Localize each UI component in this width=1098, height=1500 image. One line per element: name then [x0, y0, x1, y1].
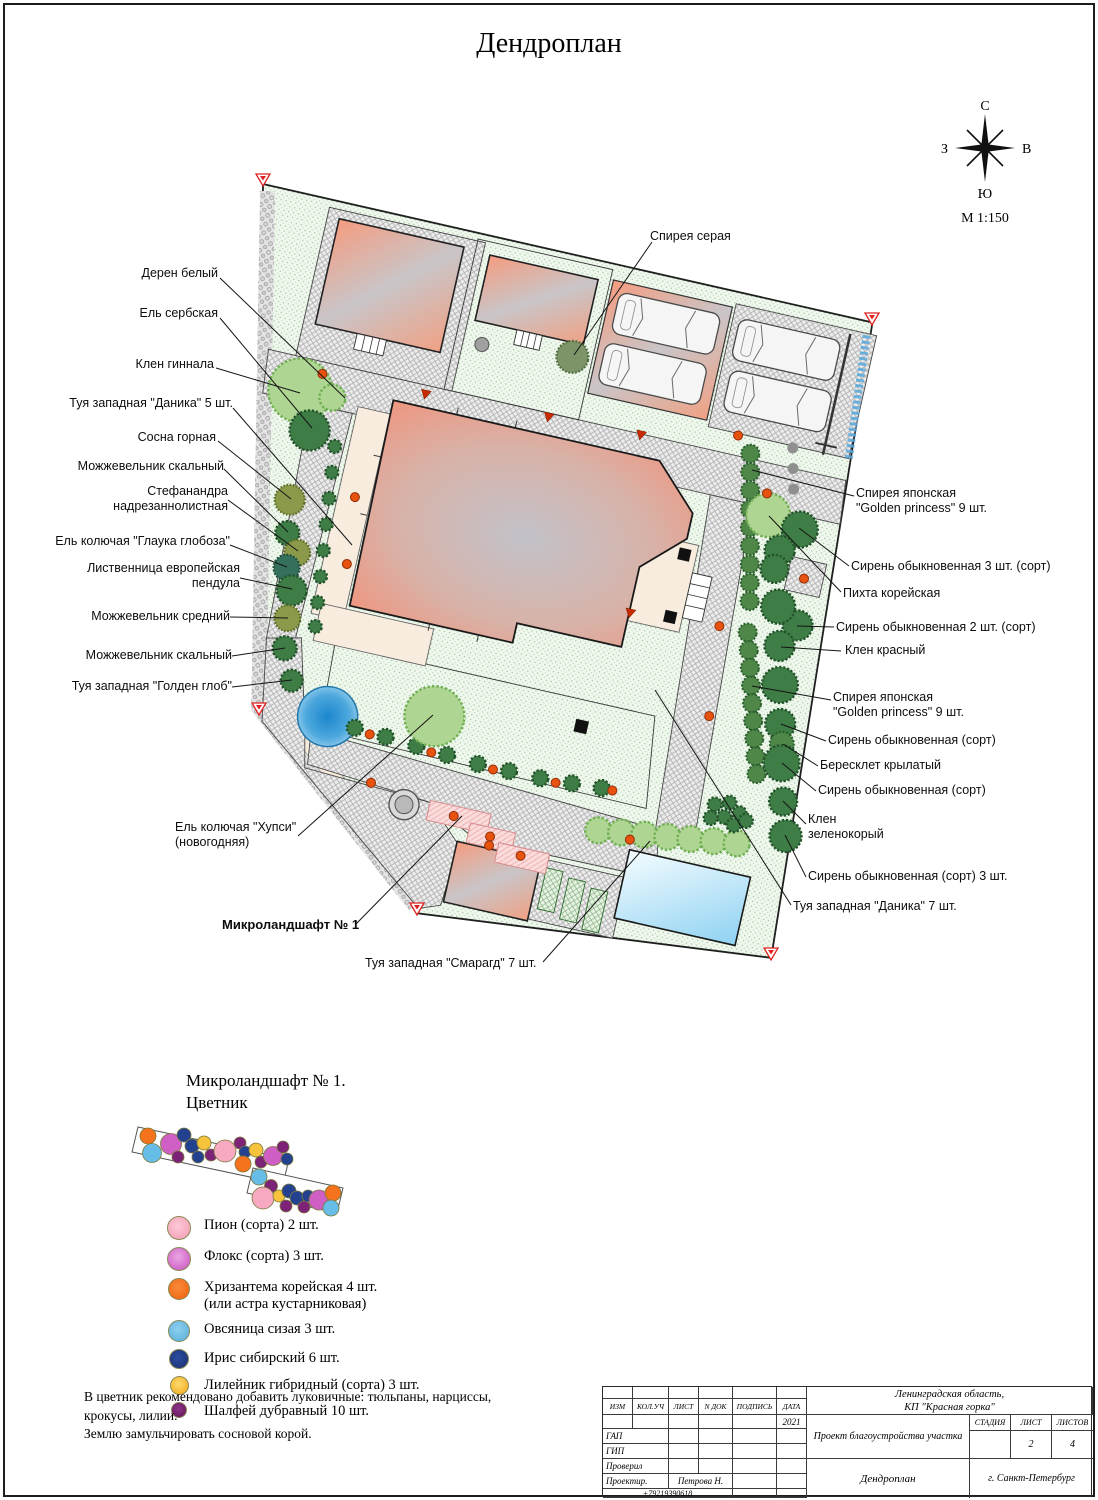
site-plan-drawing: С Ю З В М 1:150: [0, 0, 1098, 1500]
label-siren-sort-2: Сирень обыкновенная (сорт): [818, 783, 986, 798]
tb-role-proveril: Проверил: [603, 1459, 669, 1474]
tb-col-ndok: N ДОК: [699, 1399, 733, 1415]
legend-pion-swatch-icon: [167, 1216, 191, 1240]
label-mozhzhevelnik-srednii: Можжевельник средний: [91, 609, 230, 624]
tb-col-izm: ИЗМ: [603, 1399, 633, 1415]
tb-role-proektir: Проектир.: [603, 1474, 669, 1489]
legend-iris-label: Ирис сибирский 6 шт.: [204, 1349, 340, 1367]
legend-ovsyanitsa-label: Овсяница сизая 3 шт.: [204, 1320, 335, 1338]
note-line: Землю замульчировать сосновой корой.: [84, 1425, 491, 1444]
label-el-serbskaya: Ель сербская: [139, 306, 218, 321]
tb-stage-label: СТАДИЯ: [970, 1415, 1011, 1431]
label-spireya-seraya: Спирея серая: [650, 229, 731, 244]
label-siren-sort-1: Сирень обыкновенная (сорт): [828, 733, 996, 748]
compass-rose-icon: С Ю З В М 1:150: [941, 99, 1031, 226]
tb-sheet-value: 2: [1011, 1431, 1052, 1459]
legend-ovsyanitsa-swatch-icon: [168, 1320, 190, 1342]
legend-floks-swatch-icon: [167, 1247, 191, 1271]
label-tuya-golden-glob: Туя западная "Голден глоб": [72, 679, 232, 694]
legend-khrizantema-label: Хризантема корейская 4 шт. (или астра ку…: [204, 1278, 377, 1313]
legend-item: Ирис сибирский 6 шт.: [166, 1349, 419, 1369]
label-el-glauka-globoza: Ель колючая "Глаука глобоза": [55, 534, 230, 549]
label-spireya-yaponskaya-2: Спирея японская "Golden princess" 9 шт.: [833, 690, 964, 720]
title-block: ИЗМ КОЛ.УЧ ЛИСТ N ДОК ПОДПИСЬ ДАТА 2021 …: [602, 1386, 1092, 1497]
tb-col-podpis: ПОДПИСЬ: [733, 1399, 777, 1415]
legend-item: Хризантема корейская 4 шт. (или астра ку…: [166, 1278, 419, 1313]
label-siren-3sht: Сирень обыкновенная 3 шт. (сорт): [851, 559, 1050, 574]
label-pikhta-koreiskaya: Пихта корейская: [843, 586, 940, 601]
tb-sheet-label: ЛИСТ: [1011, 1415, 1052, 1431]
tb-region-line1: Ленинградская область,: [895, 1388, 1004, 1401]
tb-sheets-label: ЛИСТОВ: [1052, 1415, 1093, 1431]
legend-floks-label: Флокс (сорта) 3 шт.: [204, 1247, 324, 1265]
tb-region-line2: КП "Красная горка": [904, 1401, 995, 1414]
label-tuya-smaragd: Туя западная "Смарагд" 7 шт.: [365, 956, 536, 971]
tb-role-gip: ГИП: [603, 1444, 669, 1459]
microlandscape-title: Микроландшафт № 1. Цветник: [186, 1070, 346, 1114]
label-klen-zelenokoryi: Клен зеленокорый: [808, 812, 884, 842]
tb-sheets-value: 4: [1052, 1431, 1093, 1459]
tb-project-name: Проект благоустройства участка: [807, 1415, 970, 1459]
scale-label: М 1:150: [961, 211, 1009, 226]
label-siren-2sht: Сирень обыкновенная 2 шт. (сорт): [836, 620, 1035, 635]
label-beresklet: Бересклет крылатый: [820, 758, 941, 773]
compass-north-label: С: [980, 99, 989, 114]
label-deren-belyi: Дерен белый: [141, 266, 218, 281]
label-listvennitsa: Лиственница европейская пендула: [87, 561, 240, 591]
compass-west-label: З: [941, 142, 948, 157]
label-el-khupsi: Ель колючая "Хупси" (новогодняя): [175, 820, 296, 850]
tb-stage-value: [970, 1431, 1011, 1459]
tb-doc-title: Дендроплан: [807, 1459, 970, 1498]
note-line: крокусы, лилии.: [84, 1407, 491, 1426]
legend-item: Пион (сорта) 2 шт.: [166, 1216, 419, 1240]
label-tuya-danika-5: Туя западная "Даника" 5 шт.: [69, 396, 233, 411]
tb-designer-name: Петрова Н.: [669, 1474, 733, 1489]
microlandscape-title-line2: Цветник: [186, 1092, 346, 1114]
label-mozhzhevelnik-skalnyi-2: Можжевельник скальный: [86, 648, 232, 663]
legend-pion-label: Пион (сорта) 2 шт.: [204, 1216, 319, 1234]
label-tuya-danika-7: Туя западная "Даника" 7 шт.: [793, 899, 957, 914]
label-mikrolandshaft-1: Микроландшафт № 1: [222, 917, 359, 932]
tb-date-value: 2021: [777, 1415, 807, 1429]
notes-block: В цветник рекомендовано добавить лукович…: [84, 1388, 491, 1444]
tb-city: г. Санкт-Петербург: [970, 1459, 1093, 1498]
label-siren-sort-3sht: Сирень обыкновенная (сорт) 3 шт.: [808, 869, 1007, 884]
label-stefanandra: Стефанандра надрезаннолистная: [113, 484, 228, 514]
legend-item: Флокс (сорта) 3 шт.: [166, 1247, 419, 1271]
label-klen-ginnala: Клен гиннала: [136, 357, 214, 372]
note-line: В цветник рекомендовано добавить лукович…: [84, 1388, 491, 1407]
tb-region: Ленинградская область, КП "Красная горка…: [807, 1387, 1093, 1415]
tb-col-koluch: КОЛ.УЧ: [633, 1399, 669, 1415]
label-spireya-yaponskaya-1: Спирея японская "Golden princess" 9 шт.: [856, 486, 987, 516]
tb-col-list: ЛИСТ: [669, 1399, 699, 1415]
label-sosna-gornaya: Сосна горная: [138, 430, 216, 445]
tb-role-gap: ГАП: [603, 1429, 669, 1444]
tb-phone: +79219390618: [603, 1489, 733, 1498]
label-klen-krasnyi: Клен красный: [845, 643, 925, 658]
flower-bed-detail: [132, 1127, 343, 1216]
microlandscape-title-line1: Микроландшафт № 1.: [186, 1070, 346, 1092]
tb-col-data: ДАТА: [777, 1399, 807, 1415]
legend-khrizantema-swatch-icon: [168, 1278, 190, 1300]
legend-iris-swatch-icon: [169, 1349, 189, 1369]
compass-east-label: В: [1022, 142, 1031, 157]
compass-south-label: Ю: [978, 187, 992, 202]
legend-item: Овсяница сизая 3 шт.: [166, 1320, 419, 1342]
label-mozhzhevelnik-skalnyi-1: Можжевельник скальный: [78, 459, 224, 474]
